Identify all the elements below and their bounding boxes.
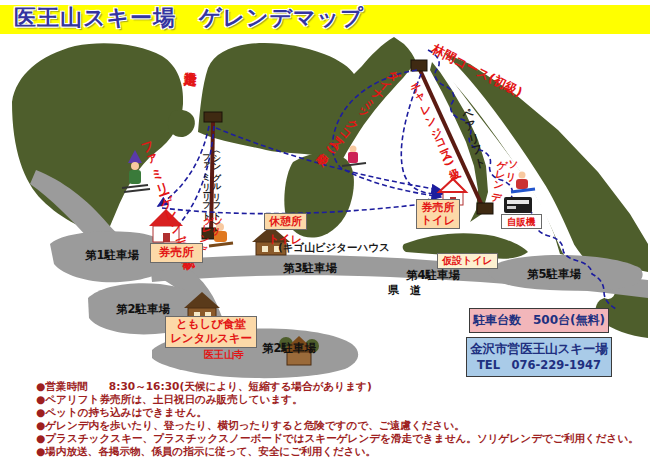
- visitor-house-label: (キゴ山ビジターハウス: [278, 242, 390, 253]
- parking-1-label: 第1駐車場: [85, 248, 139, 263]
- family-lift-label-group: ファミリーリフト 〈シングルリフト〉: [202, 148, 221, 216]
- operator-tel: TEL 076-229-1947: [467, 358, 611, 373]
- temple-label: 医王山寺: [204, 350, 244, 361]
- note-line: ●場内放送、各掲示物、係員の指示に従って、安全にご利用ください。: [36, 445, 646, 458]
- ticket-office-right-label: 券売所: [421, 201, 455, 214]
- restaurant-line1: ともしび食堂: [170, 318, 252, 332]
- note-line: ●ペアリフト券売所は、土日祝日のみ販売しています。: [36, 393, 646, 406]
- operator-name: 金沢市営医王山スキー場: [467, 341, 611, 358]
- parking-3-label: 第3駐車場: [283, 261, 337, 276]
- vending-machine-box: 自販機: [501, 214, 542, 229]
- parking-4-label: 第4駐車場: [406, 268, 460, 283]
- family-lift-label: ファミリーリフト: [202, 148, 211, 216]
- parking-capacity-box: 駐車台数 500台(無料): [469, 308, 609, 333]
- parking-2b-label: 第2駐車場: [262, 341, 316, 356]
- parking-5-label: 第5駐車場: [527, 267, 581, 282]
- rest-house-box: 休憩所: [264, 213, 307, 230]
- note-line: ●営業時間 8:30～16:30(天候により、短縮する場合があります): [36, 380, 646, 393]
- ticket-office-right-box: 券売所 トイレ: [416, 199, 460, 229]
- restaurant-box: ともしび食堂 レンタルスキー: [165, 316, 257, 348]
- note-line: ●ペットの持ち込みはできません。: [36, 406, 646, 419]
- parking-2-label: 第2駐車場: [116, 302, 170, 317]
- note-line: ●プラスチックスキー、プラスチックスノーボードではスキーゲレンデを滑走できません…: [36, 432, 646, 445]
- operator-box: 金沢市営医王山スキー場 TEL 076-229-1947: [466, 337, 612, 377]
- temporary-toilet-box: 仮設トイレ: [437, 253, 498, 269]
- vending-machine-icon: [504, 197, 532, 213]
- family-lift-sub-label: 〈シングルリフト〉: [212, 148, 221, 216]
- notes-list: ●営業時間 8:30～16:30(天候により、短縮する場合があります) ●ペアリ…: [36, 380, 646, 457]
- road-label: 県 道: [388, 283, 421, 298]
- ticket-office-left-box: 券売所: [150, 243, 203, 263]
- note-line: ●ゲレンデ内を歩いたり、登ったり、横切ったりすると危険ですので、ご遠慮ください。: [36, 419, 646, 432]
- slope-map-page: 医王山スキー場 ゲレンデマップ: [0, 0, 650, 460]
- ticket-office-right-toilet-label: トイレ: [421, 214, 455, 227]
- restaurant-line2: レンタルスキー: [170, 332, 252, 346]
